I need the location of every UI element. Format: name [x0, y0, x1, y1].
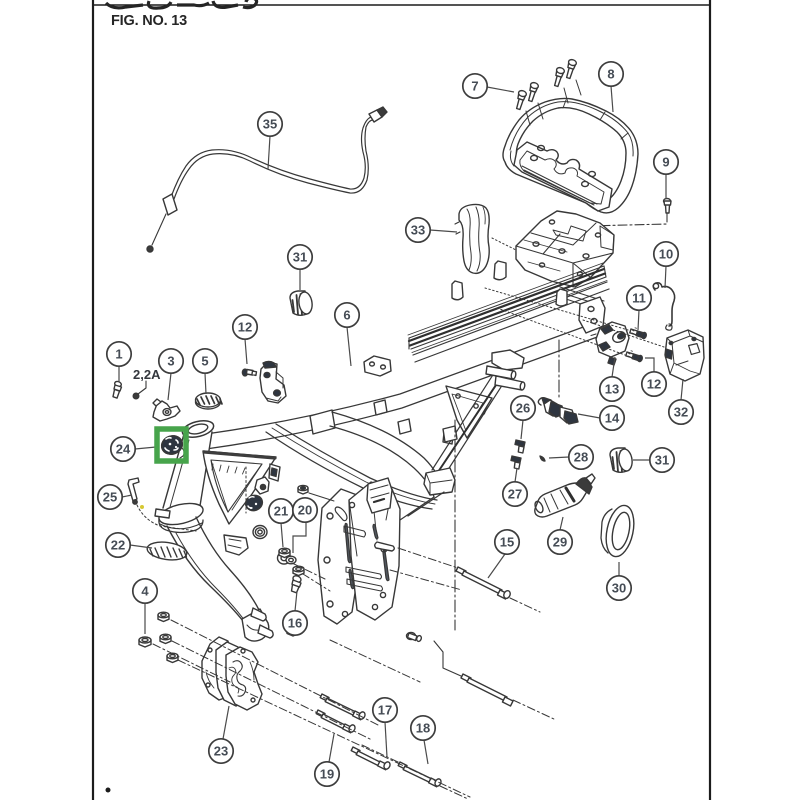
- svg-text:24: 24: [116, 442, 131, 457]
- svg-text:5: 5: [201, 354, 208, 369]
- svg-text:6: 6: [343, 308, 350, 323]
- svg-text:22: 22: [111, 538, 125, 553]
- svg-text:8: 8: [607, 67, 614, 82]
- svg-text:19: 19: [320, 767, 334, 782]
- svg-text:13: 13: [605, 382, 619, 397]
- svg-text:32: 32: [674, 405, 688, 420]
- svg-text:2,2A: 2,2A: [133, 367, 161, 382]
- svg-text:23: 23: [214, 744, 228, 759]
- svg-text:31: 31: [293, 250, 307, 265]
- svg-text:33: 33: [411, 223, 425, 238]
- svg-text:16: 16: [288, 616, 302, 631]
- svg-text:25: 25: [103, 490, 117, 505]
- svg-text:27: 27: [508, 487, 522, 502]
- svg-text:14: 14: [605, 411, 620, 426]
- svg-text:12: 12: [647, 377, 661, 392]
- svg-text:11: 11: [632, 291, 646, 306]
- svg-text:20: 20: [298, 503, 312, 518]
- svg-text:18: 18: [416, 721, 430, 736]
- svg-text:9: 9: [662, 155, 669, 170]
- svg-text:10: 10: [659, 247, 673, 262]
- svg-text:3: 3: [167, 354, 174, 369]
- svg-text:30: 30: [612, 581, 626, 596]
- svg-text:17: 17: [378, 703, 392, 718]
- svg-text:35: 35: [263, 117, 277, 132]
- svg-text:12: 12: [238, 320, 252, 335]
- svg-text:1: 1: [115, 347, 122, 362]
- svg-text:FIG. NO. 13: FIG. NO. 13: [111, 13, 187, 29]
- svg-text:15: 15: [500, 535, 514, 550]
- svg-text:21: 21: [274, 504, 288, 519]
- svg-text:4: 4: [141, 584, 149, 599]
- svg-text:29: 29: [553, 535, 567, 550]
- svg-text:31: 31: [655, 453, 669, 468]
- svg-text:26: 26: [516, 401, 530, 416]
- svg-text:28: 28: [574, 450, 588, 465]
- svg-text:7: 7: [471, 79, 478, 94]
